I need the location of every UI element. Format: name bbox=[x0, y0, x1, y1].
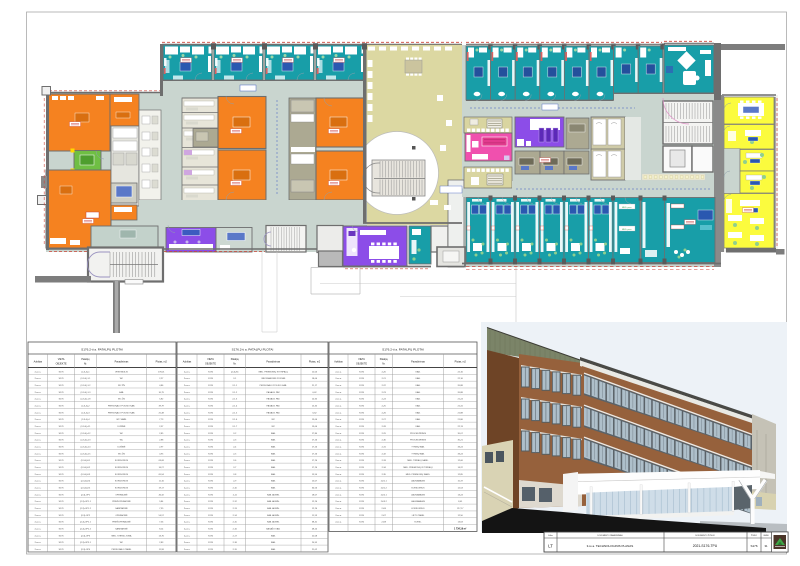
svg-text:S176: S176 bbox=[59, 378, 65, 380]
svg-text:2-as a.: 2-as a. bbox=[335, 412, 342, 414]
svg-text:2-K3.2: 2-K3.2 bbox=[381, 501, 388, 503]
svg-text:2-as a.: 2-as a. bbox=[335, 405, 342, 407]
svg-text:KAB. ADMIN.: KAB. ADMIN. bbox=[267, 521, 280, 524]
svg-text:SANITARINĖ: SANITARINĖ bbox=[115, 507, 128, 510]
svg-text:LAUKIAMASIS: LAUKIAMASIS bbox=[411, 500, 425, 503]
svg-text:KAB. ADMIN.: KAB. ADMIN. bbox=[267, 514, 280, 517]
svg-text:KORID.: KORID. bbox=[414, 522, 422, 524]
svg-text:WC TAMB.: WC TAMB. bbox=[116, 418, 127, 421]
svg-text:2-as a.: 2-as a. bbox=[184, 535, 191, 537]
svg-text:2-as a.: 2-as a. bbox=[184, 494, 191, 496]
svg-text:2-as a.: 2-as a. bbox=[35, 494, 42, 496]
svg-text:S176: S176 bbox=[59, 487, 65, 489]
svg-text:S176: S176 bbox=[208, 501, 214, 503]
svg-text:S176: S176 bbox=[359, 399, 365, 401]
svg-text:2-as a.: 2-as a. bbox=[35, 412, 42, 414]
svg-text:2-1.2: 2-1.2 bbox=[232, 392, 238, 394]
svg-text:KAB.: KAB. bbox=[271, 439, 276, 442]
svg-text:OBJEKTE: OBJEKTE bbox=[205, 363, 216, 366]
svg-text:17,26: 17,26 bbox=[312, 446, 318, 448]
svg-text:MED. PRIEMONIŲ SAND.: MED. PRIEMONIŲ SAND. bbox=[406, 473, 431, 476]
svg-text:KORIDORIUS: KORIDORIUS bbox=[411, 487, 425, 489]
svg-text:PRIEŠOPERACINĖ: PRIEŠOPERACINĖ bbox=[112, 500, 131, 503]
svg-text:2021-S176-TPU: 2021-S176-TPU bbox=[693, 544, 718, 548]
svg-text:S176: S176 bbox=[59, 549, 65, 551]
svg-text:WC ŽN: WC ŽN bbox=[118, 452, 125, 455]
svg-text:MED. STERILI ZONA: MED. STERILI ZONA bbox=[111, 534, 132, 537]
svg-text:PERSONALO POILSIO KAB.: PERSONALO POILSIO KAB. bbox=[260, 384, 288, 387]
svg-text:2-as a.: 2-as a. bbox=[35, 371, 42, 373]
svg-text:2-as a.: 2-as a. bbox=[184, 392, 191, 394]
svg-text:2-as a.: 2-as a. bbox=[35, 487, 42, 489]
svg-text:S176: S176 bbox=[208, 426, 214, 428]
svg-text:KAB.: KAB. bbox=[271, 445, 276, 448]
svg-text:LAUKIAMASIS: LAUKIAMASIS bbox=[411, 480, 425, 483]
svg-text:2-as a.: 2-as a. bbox=[35, 508, 42, 510]
svg-text:KAB.: KAB. bbox=[271, 466, 276, 469]
svg-text:S176: S176 bbox=[359, 453, 365, 455]
svg-text:11,16: 11,16 bbox=[159, 481, 165, 483]
svg-text:2-as a.: 2-as a. bbox=[335, 399, 342, 401]
svg-text:12,26: 12,26 bbox=[312, 501, 318, 503]
svg-text:20,88: 20,88 bbox=[458, 392, 464, 394]
svg-text:S176: S176 bbox=[359, 392, 365, 394]
svg-text:(2-3)-OP2: (2-3)-OP2 bbox=[81, 515, 91, 517]
svg-text:KORIDORIUS: KORIDORIUS bbox=[115, 487, 129, 489]
svg-text:15,35: 15,35 bbox=[312, 405, 318, 407]
svg-text:10,79: 10,79 bbox=[159, 392, 165, 394]
svg-text:2-as a.: 2-as a. bbox=[184, 508, 191, 510]
svg-text:TYRIMŲ KAB.: TYRIMŲ KAB. bbox=[411, 452, 425, 455]
svg-text:S176: S176 bbox=[208, 433, 214, 435]
svg-text:PRIEŠOPERACINĖ: PRIEŠOPERACINĖ bbox=[112, 521, 131, 524]
svg-text:22,16: 22,16 bbox=[458, 378, 464, 380]
svg-text:(2-3-4)-4.1: (2-3-4)-4.1 bbox=[81, 426, 92, 428]
svg-text:S176: S176 bbox=[208, 515, 214, 517]
svg-text:Nr.: Nr. bbox=[233, 363, 236, 366]
svg-text:15,37: 15,37 bbox=[458, 481, 464, 483]
svg-text:VIETA: VIETA bbox=[58, 358, 65, 361]
svg-text:S176: S176 bbox=[59, 392, 65, 394]
svg-text:Nr.: Nr. bbox=[382, 363, 385, 366]
svg-text:DOKUMENTO ŽYMUO: DOKUMENTO ŽYMUO bbox=[695, 534, 715, 537]
svg-text:S176: S176 bbox=[208, 392, 214, 394]
svg-text:KORIDORIUS: KORIDORIUS bbox=[115, 460, 129, 462]
svg-text:2-as a.: 2-as a. bbox=[184, 378, 191, 380]
svg-text:2-as a.: 2-as a. bbox=[35, 467, 42, 469]
svg-text:(2-3-4)-1.1: (2-3-4)-1.1 bbox=[81, 378, 92, 380]
svg-text:KAB.: KAB. bbox=[271, 432, 276, 435]
svg-text:17,26: 17,26 bbox=[312, 453, 318, 455]
svg-text:2-as a.: 2-as a. bbox=[184, 433, 191, 435]
svg-text:(2-3-4)-1: (2-3-4)-1 bbox=[81, 371, 90, 373]
svg-text:(2-3-4)-K3: (2-3-4)-K3 bbox=[81, 474, 91, 476]
svg-text:S176: S176 bbox=[208, 474, 214, 476]
svg-text:2-as a.: 2-as a. bbox=[335, 419, 342, 421]
svg-text:Kalba: Kalba bbox=[548, 535, 553, 537]
svg-text:20,95: 20,95 bbox=[312, 542, 318, 544]
svg-text:(2-3-4)-3: (2-3-4)-3 bbox=[81, 412, 90, 414]
svg-text:OBJEKTE: OBJEKTE bbox=[56, 363, 67, 366]
svg-text:S176: S176 bbox=[59, 446, 65, 448]
svg-text:12,50: 12,50 bbox=[458, 515, 464, 517]
svg-text:S176: S176 bbox=[359, 426, 365, 428]
svg-text:PAGALB. PAT.: PAGALB. PAT. bbox=[267, 404, 281, 407]
svg-text:KAB.: KAB. bbox=[271, 541, 276, 544]
svg-text:S176: S176 bbox=[750, 544, 757, 548]
svg-text:2-as a.: 2-as a. bbox=[184, 549, 191, 551]
svg-text:WC: WC bbox=[120, 440, 124, 442]
svg-text:31: 31 bbox=[764, 544, 768, 548]
svg-text:Patalpų: Patalpų bbox=[380, 358, 389, 361]
svg-text:Nr.: Nr. bbox=[84, 363, 87, 366]
svg-text:2-as a.: 2-as a. bbox=[184, 440, 191, 442]
svg-text:S176: S176 bbox=[208, 378, 214, 380]
svg-text:2-as a.: 2-as a. bbox=[335, 501, 342, 503]
svg-text:13,76: 13,76 bbox=[159, 535, 165, 537]
svg-text:S176: S176 bbox=[359, 501, 365, 503]
svg-text:Plotas, m2: Plotas, m2 bbox=[309, 361, 321, 364]
svg-text:S176: S176 bbox=[359, 433, 365, 435]
svg-text:2-K1.1: 2-K1.1 bbox=[381, 481, 388, 483]
svg-text:S176: S176 bbox=[208, 412, 214, 414]
svg-text:2-as a.: 2-as a. bbox=[35, 460, 42, 462]
svg-text:TYRIMŲ KAB.: TYRIMŲ KAB. bbox=[411, 445, 425, 448]
svg-text:S176: S176 bbox=[59, 453, 65, 455]
svg-text:KORIDORIUS: KORIDORIUS bbox=[115, 481, 129, 483]
svg-text:2-as a.: 2-as a. bbox=[184, 371, 191, 373]
svg-text:12,03: 12,03 bbox=[312, 371, 318, 373]
svg-text:21,17: 21,17 bbox=[312, 385, 318, 387]
svg-text:2-as a.: 2-as a. bbox=[335, 494, 342, 496]
svg-text:(2-3-4)-1.8: (2-3-4)-1.8 bbox=[81, 399, 92, 401]
svg-text:(2-3-4)-K4: (2-3-4)-K4 bbox=[81, 481, 91, 483]
svg-text:S176: S176 bbox=[359, 474, 365, 476]
svg-text:KAB.: KAB. bbox=[271, 534, 276, 537]
svg-text:KAB.: KAB. bbox=[416, 425, 421, 428]
svg-text:2-as a.: 2-as a. bbox=[335, 474, 342, 476]
svg-text:S176: S176 bbox=[59, 501, 65, 503]
svg-text:2-as a.: 2-as a. bbox=[184, 467, 191, 469]
svg-text:2-as a.: 2-as a. bbox=[184, 481, 191, 483]
svg-text:2-as a.: 2-as a. bbox=[35, 481, 42, 483]
svg-text:3-io a. TECHNOLOGINIS PLANAS: 3-io a. TECHNOLOGINIS PLANAS bbox=[587, 544, 634, 548]
svg-text:S176: S176 bbox=[59, 481, 65, 483]
svg-text:S176: S176 bbox=[59, 371, 65, 373]
svg-text:2-as a.: 2-as a. bbox=[335, 515, 342, 517]
svg-text:S176: S176 bbox=[59, 460, 65, 462]
svg-text:33,24: 33,24 bbox=[458, 446, 464, 448]
svg-text:(2-3)-OP2.2: (2-3)-OP2.2 bbox=[80, 528, 92, 530]
svg-text:KAB.: KAB. bbox=[271, 486, 276, 489]
svg-text:S176: S176 bbox=[208, 508, 214, 510]
svg-text:S176: S176 bbox=[59, 385, 65, 387]
svg-text:S176: S176 bbox=[208, 542, 214, 544]
svg-text:2-as a.: 2-as a. bbox=[35, 535, 42, 537]
svg-text:KAB.: KAB. bbox=[271, 480, 276, 483]
svg-text:17,26: 17,26 bbox=[312, 460, 318, 462]
svg-text:2-as a.: 2-as a. bbox=[335, 433, 342, 435]
svg-text:(2-3)-OP1.1: (2-3)-OP1.1 bbox=[80, 501, 92, 503]
svg-text:2-as a.: 2-as a. bbox=[35, 528, 42, 530]
svg-text:WC: WC bbox=[120, 433, 124, 435]
svg-text:S176: S176 bbox=[59, 399, 65, 401]
svg-text:2-as a.: 2-as a. bbox=[335, 460, 342, 462]
svg-text:S176: S176 bbox=[359, 522, 365, 524]
svg-text:15,50: 15,50 bbox=[312, 474, 318, 476]
svg-text:2-as a.: 2-as a. bbox=[335, 446, 342, 448]
svg-text:2-as a.: 2-as a. bbox=[335, 385, 342, 387]
svg-text:S176: S176 bbox=[208, 522, 214, 524]
svg-text:WC: WC bbox=[272, 419, 276, 421]
svg-text:22,08: 22,08 bbox=[312, 535, 318, 537]
svg-text:KAB.: KAB. bbox=[416, 384, 421, 387]
svg-text:2-as a.: 2-as a. bbox=[184, 385, 191, 387]
svg-text:178,21: 178,21 bbox=[158, 371, 165, 373]
svg-text:Plotas, m2: Plotas, m2 bbox=[156, 361, 168, 364]
svg-text:S176: S176 bbox=[59, 522, 65, 524]
svg-text:2-as a.: 2-as a. bbox=[184, 419, 191, 421]
svg-text:2-as a.: 2-as a. bbox=[35, 419, 42, 421]
svg-text:21,88: 21,88 bbox=[458, 412, 464, 414]
svg-text:VIETA: VIETA bbox=[207, 358, 214, 361]
svg-text:Pavadinimas: Pavadinimas bbox=[115, 361, 129, 364]
svg-text:S176: S176 bbox=[359, 515, 365, 517]
svg-text:DUŠINĖ: DUŠINĖ bbox=[118, 445, 126, 448]
svg-text:35,07: 35,07 bbox=[458, 433, 464, 435]
svg-text:(2-3)-OP3: (2-3)-OP3 bbox=[81, 535, 91, 537]
svg-text:11,98: 11,98 bbox=[159, 549, 165, 551]
svg-text:KAB. ADMIN.: KAB. ADMIN. bbox=[267, 507, 280, 510]
svg-text:(2-3-4)-4.2: (2-3-4)-4.2 bbox=[81, 433, 92, 435]
svg-text:KAB.: KAB. bbox=[271, 459, 276, 462]
svg-text:22,13: 22,13 bbox=[458, 426, 464, 428]
svg-text:2-as a.: 2-as a. bbox=[184, 399, 191, 401]
svg-text:2-as a.: 2-as a. bbox=[335, 487, 342, 489]
svg-text:S176: S176 bbox=[59, 405, 65, 407]
svg-text:KAB.: KAB. bbox=[416, 391, 421, 394]
svg-text:S176: S176 bbox=[59, 474, 65, 476]
svg-text:S176: S176 bbox=[208, 535, 214, 537]
svg-text:12,85: 12,85 bbox=[458, 474, 464, 476]
svg-text:2-as a.: 2-as a. bbox=[35, 453, 42, 455]
svg-text:S176: S176 bbox=[59, 508, 65, 510]
svg-text:2-as a.: 2-as a. bbox=[35, 385, 42, 387]
svg-text:MED. pers.: MED. pers. bbox=[622, 229, 632, 231]
svg-text:S176: S176 bbox=[59, 467, 65, 469]
svg-text:MED. TIRPALŲ SAND.: MED. TIRPALŲ SAND. bbox=[407, 459, 429, 462]
svg-text:S176: S176 bbox=[359, 412, 365, 414]
svg-text:2-as a.: 2-as a. bbox=[335, 392, 342, 394]
svg-text:S176: S176 bbox=[208, 371, 214, 373]
svg-text:(2-3)-S1: (2-3)-S1 bbox=[231, 371, 239, 373]
svg-text:LT: LT bbox=[548, 544, 553, 549]
svg-text:25,48: 25,48 bbox=[159, 412, 165, 414]
svg-text:2-as a.: 2-as a. bbox=[335, 467, 342, 469]
svg-text:DOKUMENTO PAVADINIMAS: DOKUMENTO PAVADINIMAS bbox=[597, 534, 623, 537]
svg-text:MED. PRIEMONIŲ IR TIRPALŲ: MED. PRIEMONIŲ IR TIRPALŲ bbox=[403, 466, 433, 469]
svg-text:2-as a.: 2-as a. bbox=[35, 392, 42, 394]
svg-text:2-as a.: 2-as a. bbox=[184, 453, 191, 455]
svg-text:MED. PRIEMONIŲ IR TIRPALŲ: MED. PRIEMONIŲ IR TIRPALŲ bbox=[259, 370, 289, 373]
svg-text:2-as a.: 2-as a. bbox=[35, 474, 42, 476]
svg-text:KAB.: KAB. bbox=[119, 391, 124, 394]
svg-text:PAGALB. PAT.: PAGALB. PAT. bbox=[267, 391, 281, 394]
svg-text:S176: S176 bbox=[208, 487, 214, 489]
svg-text:2-as a.: 2-as a. bbox=[35, 433, 42, 435]
svg-text:34,56: 34,56 bbox=[312, 487, 318, 489]
svg-text:2-as a.: 2-as a. bbox=[184, 426, 191, 428]
svg-text:2-as a.: 2-as a. bbox=[35, 549, 42, 551]
svg-text:(2-3-4)-2: (2-3-4)-2 bbox=[81, 405, 90, 407]
svg-text:17,26: 17,26 bbox=[312, 440, 318, 442]
svg-text:2-as a.: 2-as a. bbox=[184, 542, 191, 544]
svg-text:PERSONALO POILSIO KAB.: PERSONALO POILSIO KAB. bbox=[108, 411, 136, 414]
svg-text:2-as a.: 2-as a. bbox=[335, 508, 342, 510]
svg-text:S176: S176 bbox=[59, 535, 65, 537]
svg-text:(2-3-4)-K5: (2-3-4)-K5 bbox=[81, 487, 91, 489]
svg-text:2-as a.: 2-as a. bbox=[184, 474, 191, 476]
svg-text:2-as a.: 2-as a. bbox=[184, 501, 191, 503]
svg-text:2-as a.: 2-as a. bbox=[184, 522, 191, 524]
svg-text:KAB.: KAB. bbox=[416, 411, 421, 414]
svg-text:18,06: 18,06 bbox=[312, 378, 318, 380]
svg-text:S176: S176 bbox=[208, 528, 214, 530]
svg-text:Plotas, m2: Plotas, m2 bbox=[455, 361, 467, 364]
svg-text:LAUKIAMASIS: LAUKIAMASIS bbox=[411, 493, 425, 496]
svg-text:18,07: 18,07 bbox=[312, 494, 318, 496]
svg-text:11,53: 11,53 bbox=[312, 515, 318, 517]
svg-text:2-1.7: 2-1.7 bbox=[232, 426, 238, 428]
svg-text:OBJEKTE: OBJEKTE bbox=[356, 363, 367, 366]
svg-text:KAB.: KAB. bbox=[271, 548, 276, 551]
svg-text:S176.2-ti a. PATALPŲ PLOTAI: S176.2-ti a. PATALPŲ PLOTAI bbox=[382, 348, 424, 352]
svg-text:2-as a.: 2-as a. bbox=[184, 446, 191, 448]
svg-text:2-as a.: 2-as a. bbox=[184, 405, 191, 407]
svg-text:17,84: 17,84 bbox=[312, 433, 318, 435]
svg-text:(2-3-4)-4.5: (2-3-4)-4.5 bbox=[81, 453, 92, 455]
svg-text:S176: S176 bbox=[208, 385, 214, 387]
svg-text:S176: S176 bbox=[208, 399, 214, 401]
svg-text:S176: S176 bbox=[59, 426, 65, 428]
svg-text:S176: S176 bbox=[208, 467, 214, 469]
svg-text:S176: S176 bbox=[208, 446, 214, 448]
svg-text:12,53: 12,53 bbox=[458, 487, 464, 489]
svg-text:KAB.: KAB. bbox=[416, 370, 421, 373]
svg-text:14,22: 14,22 bbox=[458, 467, 464, 469]
svg-text:SANITARINĖ: SANITARINĖ bbox=[115, 527, 128, 530]
svg-text:48,24: 48,24 bbox=[312, 528, 318, 530]
svg-text:KAB.: KAB. bbox=[416, 398, 421, 401]
svg-text:2-as a.: 2-as a. bbox=[335, 522, 342, 524]
svg-text:Patalpų: Patalpų bbox=[81, 358, 90, 361]
svg-text:Aukštas: Aukštas bbox=[334, 361, 343, 364]
svg-text:22,16: 22,16 bbox=[458, 371, 464, 373]
svg-text:2-as a.: 2-as a. bbox=[335, 481, 342, 483]
svg-text:20,88: 20,88 bbox=[458, 385, 464, 387]
svg-text:WC: WC bbox=[120, 378, 124, 380]
svg-text:PAGALB. PAT.: PAGALB. PAT. bbox=[267, 411, 281, 414]
svg-text:WC: WC bbox=[272, 426, 276, 428]
svg-text:S176: S176 bbox=[59, 433, 65, 435]
svg-text:39,79: 39,79 bbox=[159, 405, 165, 407]
svg-text:S176: S176 bbox=[208, 481, 214, 483]
svg-text:2-1.5: 2-1.5 bbox=[232, 412, 238, 414]
svg-text:S176: S176 bbox=[59, 440, 65, 442]
svg-text:(2-3)-OP2.1: (2-3)-OP2.1 bbox=[80, 522, 92, 524]
svg-text:KORIDORIUS: KORIDORIUS bbox=[411, 508, 425, 510]
svg-text:KAB.: KAB. bbox=[416, 377, 421, 380]
svg-text:S176.2-ti a. PATALPŲ PLOTAI: S176.2-ti a. PATALPŲ PLOTAI bbox=[81, 348, 123, 352]
svg-text:WC ŽN: WC ŽN bbox=[118, 384, 125, 387]
svg-text:2-as a.: 2-as a. bbox=[35, 501, 42, 503]
svg-text:(2-3-4)-K2: (2-3-4)-K2 bbox=[81, 467, 91, 469]
svg-text:KORIDORIUS: KORIDORIUS bbox=[115, 467, 129, 469]
svg-text:PERSONALO POILSIO KAB.: PERSONALO POILSIO KAB. bbox=[108, 404, 136, 407]
svg-text:2-as a.: 2-as a. bbox=[35, 522, 42, 524]
svg-text:35,21: 35,21 bbox=[458, 440, 464, 442]
svg-text:17,26: 17,26 bbox=[312, 467, 318, 469]
svg-text:Patalpų: Patalpų bbox=[231, 358, 240, 361]
svg-text:S176.2-ti a. PATALPŲ PLOTAI: S176.2-ti a. PATALPŲ PLOTAI bbox=[232, 348, 274, 352]
svg-text:VIETA: VIETA bbox=[358, 358, 365, 361]
svg-text:2-as a.: 2-as a. bbox=[35, 446, 42, 448]
svg-text:2-1.3: 2-1.3 bbox=[232, 399, 238, 401]
svg-text:MED. pers.: MED. pers. bbox=[622, 207, 632, 209]
svg-text:13,24: 13,24 bbox=[458, 494, 464, 496]
svg-text:LAPAS: LAPAS bbox=[763, 534, 769, 537]
svg-text:2-as a.: 2-as a. bbox=[335, 453, 342, 455]
svg-text:S176: S176 bbox=[359, 405, 365, 407]
svg-text:VESTIBIULIS: VESTIBIULIS bbox=[115, 371, 128, 373]
svg-text:KAB.: KAB. bbox=[416, 418, 421, 421]
svg-text:S176: S176 bbox=[208, 453, 214, 455]
svg-text:2-as a.: 2-as a. bbox=[35, 399, 42, 401]
svg-text:S176: S176 bbox=[359, 440, 365, 442]
svg-text:10,35: 10,35 bbox=[312, 399, 318, 401]
svg-text:(2-3)-OP3.1: (2-3)-OP3.1 bbox=[80, 542, 92, 544]
svg-text:(2-3-4)-4.4: (2-3-4)-4.4 bbox=[81, 446, 92, 448]
svg-text:21,02: 21,02 bbox=[312, 549, 318, 551]
svg-text:21,24: 21,24 bbox=[458, 399, 464, 401]
svg-text:KAB. ADMIN.: KAB. ADMIN. bbox=[267, 500, 280, 503]
svg-text:S176: S176 bbox=[59, 528, 65, 530]
svg-text:S176: S176 bbox=[59, 515, 65, 517]
svg-text:(2-3-4)-K1: (2-3-4)-K1 bbox=[81, 460, 91, 462]
svg-text:(2-3)-OP1: (2-3)-OP1 bbox=[81, 494, 91, 496]
svg-text:S176: S176 bbox=[359, 446, 365, 448]
svg-text:2-1.4: 2-1.4 bbox=[232, 405, 238, 407]
svg-text:13,06: 13,06 bbox=[312, 426, 318, 428]
svg-text:2-as a.: 2-as a. bbox=[35, 542, 42, 544]
svg-text:KORIDORIUS: KORIDORIUS bbox=[115, 474, 129, 476]
svg-text:ŽYMUO: ŽYMUO bbox=[751, 534, 758, 537]
svg-text:PROCEDŪRINIS: PROCEDŪRINIS bbox=[410, 439, 427, 442]
svg-text:2-as a.: 2-as a. bbox=[184, 487, 191, 489]
svg-text:2-K1.2: 2-K1.2 bbox=[381, 487, 388, 489]
svg-text:38,41: 38,41 bbox=[312, 522, 318, 524]
svg-text:2-as a.: 2-as a. bbox=[184, 528, 191, 530]
svg-text:PROCEDŪRINIS: PROCEDŪRINIS bbox=[410, 432, 427, 435]
svg-text:PERSONALO TAMB.: PERSONALO TAMB. bbox=[112, 548, 132, 551]
svg-text:Aukštas: Aukštas bbox=[183, 361, 192, 364]
svg-text:Aukštas: Aukštas bbox=[34, 361, 43, 364]
svg-text:12,26: 12,26 bbox=[312, 508, 318, 510]
svg-text:2-as a.: 2-as a. bbox=[35, 405, 42, 407]
svg-text:S176: S176 bbox=[359, 371, 365, 373]
svg-text:2-as a.: 2-as a. bbox=[184, 412, 191, 414]
svg-text:S176: S176 bbox=[208, 419, 214, 421]
